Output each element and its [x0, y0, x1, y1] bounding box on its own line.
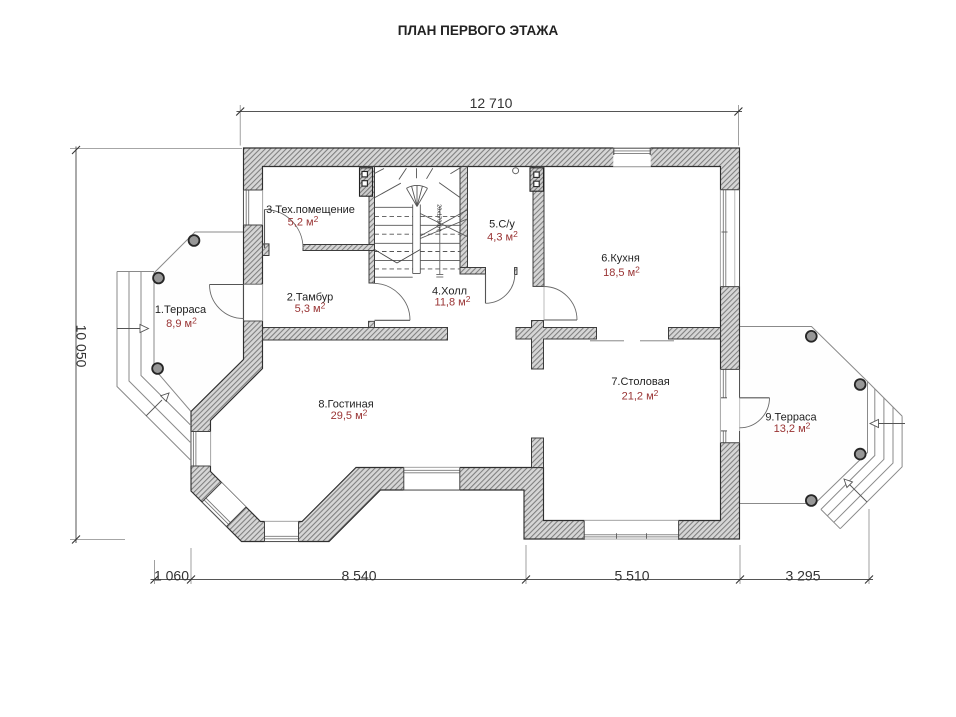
svg-text:13,2 м2: 13,2 м2: [774, 421, 811, 436]
svg-text:2.Тамбур: 2.Тамбур: [287, 292, 334, 304]
svg-text:3.Тех.помещение: 3.Тех.помещение: [266, 204, 355, 216]
svg-text:1 060: 1 060: [154, 568, 189, 584]
svg-text:21,2 м2: 21,2 м2: [622, 388, 659, 403]
svg-text:5 510: 5 510: [614, 568, 649, 584]
svg-text:1.Терраса: 1.Терраса: [155, 304, 207, 316]
svg-text:18,5 м2: 18,5 м2: [603, 265, 640, 280]
svg-text:8 540: 8 540: [341, 568, 376, 584]
svg-text:10 050: 10 050: [74, 325, 90, 368]
svg-text:11,8 м2: 11,8 м2: [435, 294, 471, 309]
svg-text:12 710: 12 710: [470, 95, 513, 111]
svg-text:7.Столовая: 7.Столовая: [611, 376, 669, 388]
svg-text:ПЛАН ПЕРВОГО ЭТАЖА: ПЛАН ПЕРВОГО ЭТАЖА: [398, 23, 559, 38]
svg-text:29,5 м2: 29,5 м2: [331, 408, 368, 423]
svg-text:5.С/у: 5.С/у: [489, 219, 515, 231]
svg-text:20х170х(н): 20х170х(н): [436, 204, 442, 232]
svg-text:3 295: 3 295: [785, 568, 820, 584]
svg-text:6.Кухня: 6.Кухня: [601, 253, 640, 265]
